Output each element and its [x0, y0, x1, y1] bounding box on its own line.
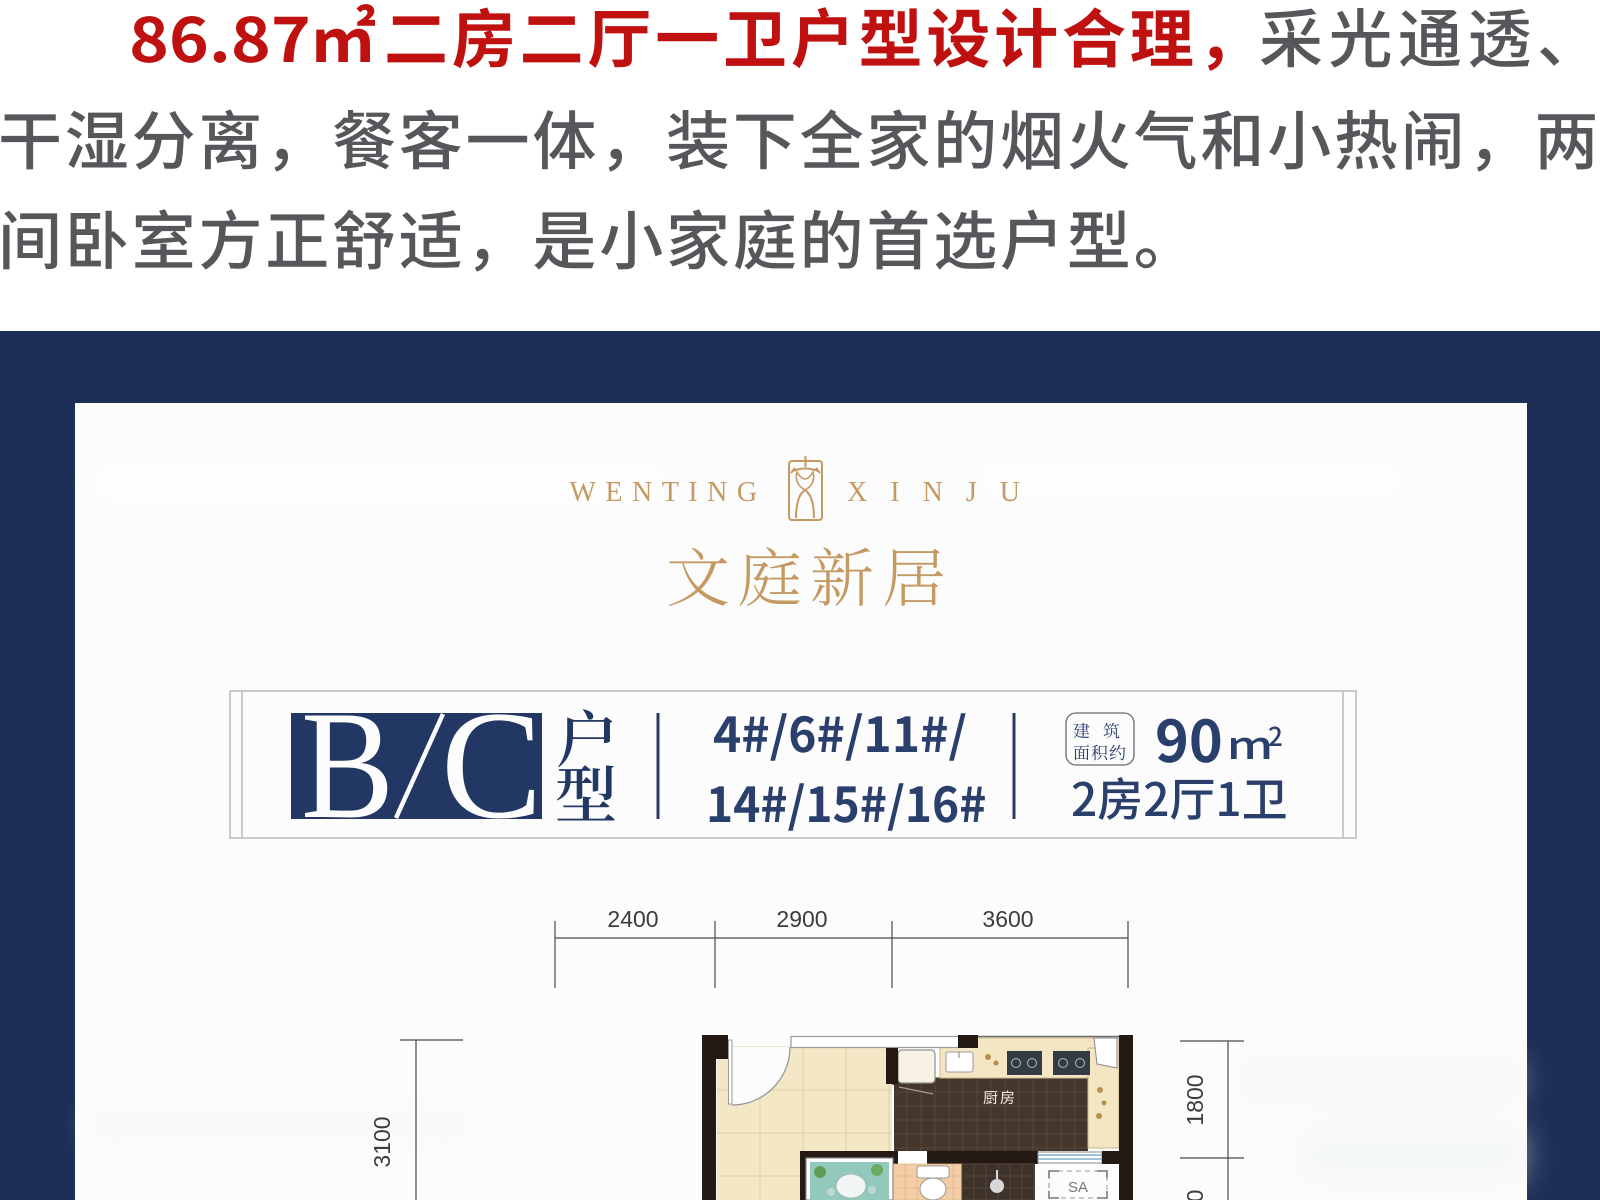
- svg-text:SA: SA: [1068, 1179, 1088, 1196]
- svg-text:XINJU: XINJU: [847, 477, 1043, 508]
- svg-text:1800: 1800: [1182, 1074, 1208, 1125]
- svg-text:WENTING: WENTING: [569, 477, 766, 508]
- svg-text:0: 0: [1182, 1190, 1208, 1200]
- svg-text:3100: 3100: [369, 1116, 395, 1167]
- svg-text:2900: 2900: [776, 906, 827, 932]
- svg-text:C: C: [441, 680, 542, 852]
- svg-text:3600: 3600: [982, 906, 1033, 932]
- svg-text:2400: 2400: [607, 906, 658, 932]
- svg-text:B: B: [301, 679, 394, 850]
